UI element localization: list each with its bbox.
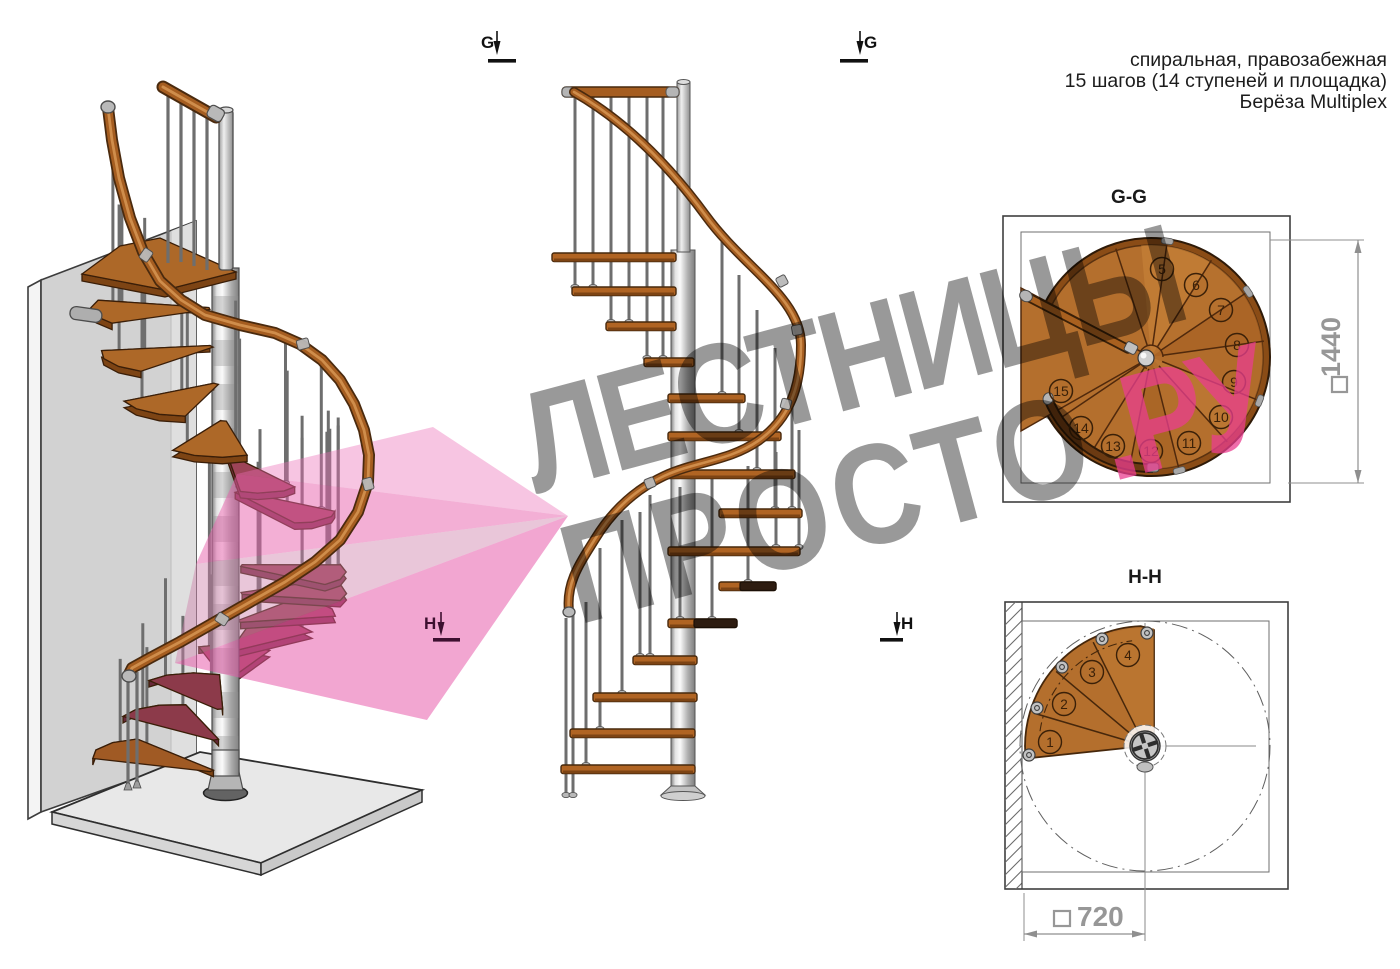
svg-text:H-H: H-H	[1128, 567, 1162, 588]
svg-text:3: 3	[1088, 665, 1096, 680]
svg-text:720: 720	[1077, 901, 1124, 932]
svg-text:G: G	[481, 33, 494, 52]
svg-text:7: 7	[1217, 302, 1225, 318]
svg-text:15 шагов (14 ступеней и площад: 15 шагов (14 ступеней и площадка)	[1065, 70, 1387, 92]
svg-text:1: 1	[1046, 735, 1054, 750]
svg-text:6: 6	[1192, 277, 1200, 293]
svg-text:2: 2	[1060, 697, 1068, 712]
svg-text:G: G	[864, 33, 877, 52]
svg-text:H: H	[424, 614, 436, 633]
svg-text:1440: 1440	[1316, 317, 1346, 377]
svg-text:спиральная, правозабежная: спиральная, правозабежная	[1130, 49, 1387, 71]
svg-text:Берёза Multiplex: Берёза Multiplex	[1240, 91, 1388, 113]
svg-text:4: 4	[1124, 648, 1132, 663]
svg-text:H: H	[901, 614, 913, 633]
